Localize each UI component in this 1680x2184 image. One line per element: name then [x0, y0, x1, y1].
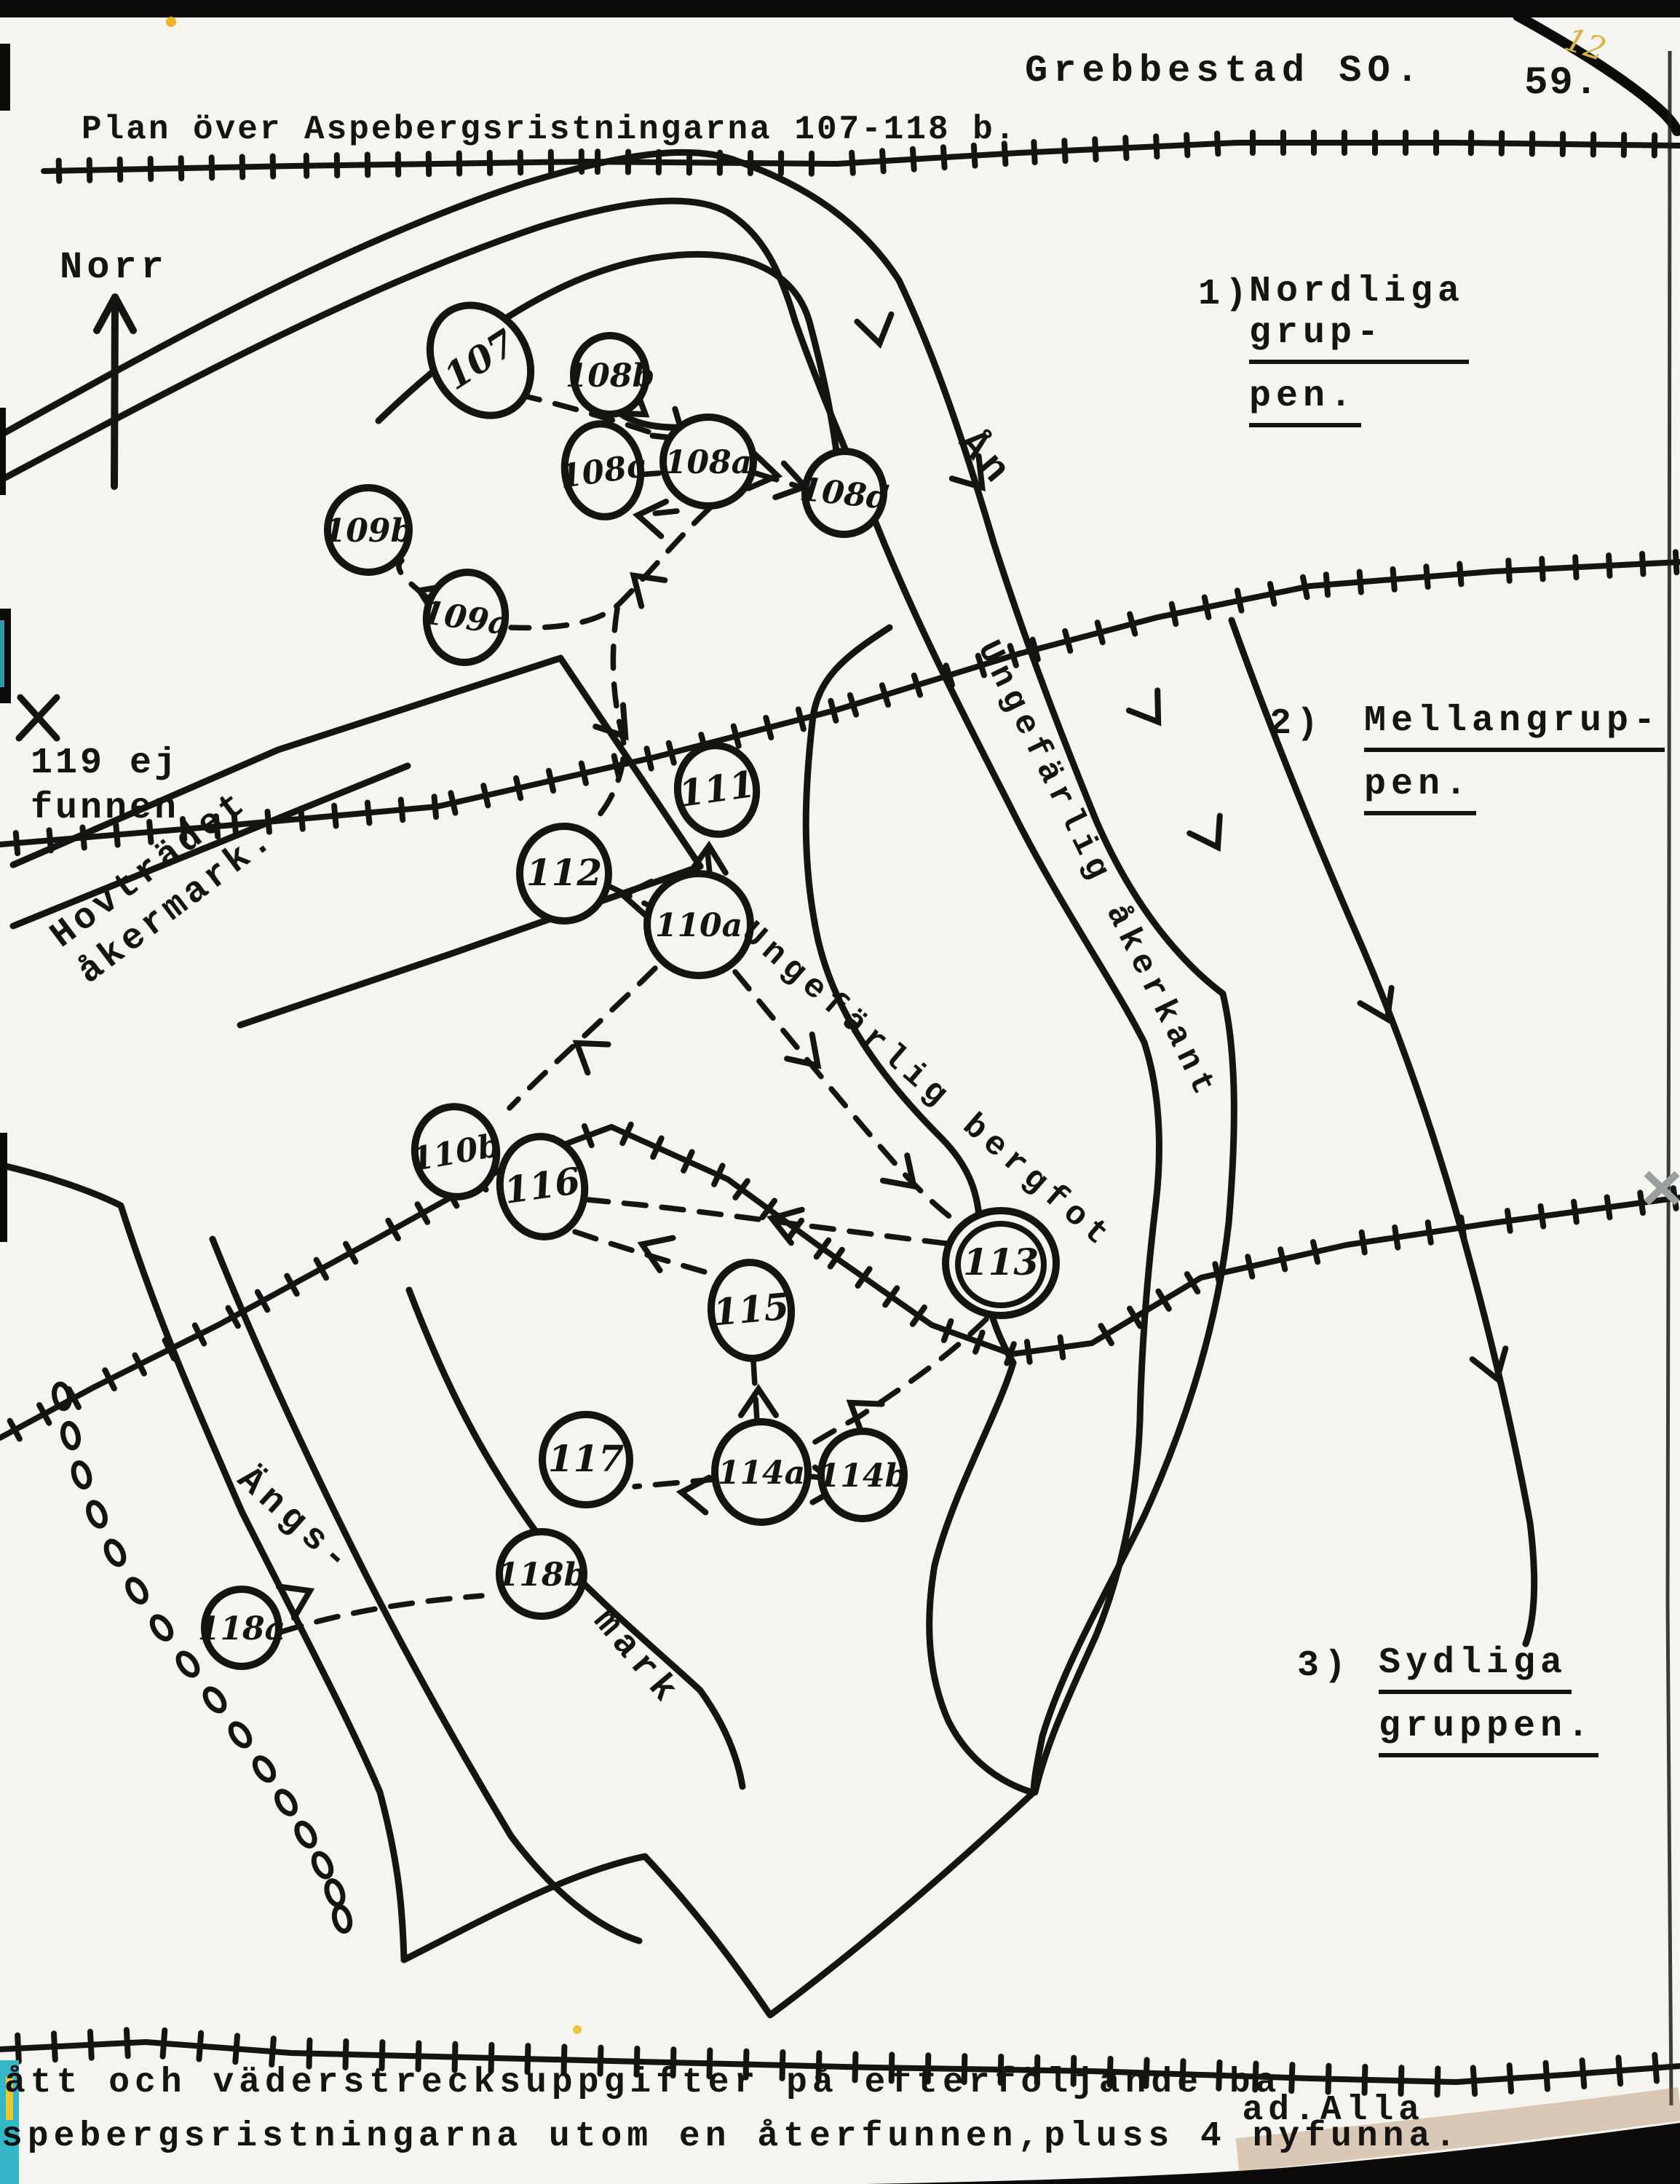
stone-wall-oval [71, 1461, 92, 1489]
station-117: 117 [542, 1415, 630, 1505]
svg-text:108a: 108a [665, 444, 752, 481]
station-114a: 114a [715, 1422, 808, 1522]
station-114b: 114b [818, 1431, 908, 1519]
station-113: 113 [946, 1211, 1056, 1315]
scanned-map-page: 107108b108c108a108d109b109a111112110a110… [0, 0, 1680, 2184]
compass-label: Norr [60, 246, 168, 289]
svg-text:118a: 118a [198, 1610, 285, 1647]
station-108c: 108c [553, 418, 652, 522]
stone-wall-oval [324, 1879, 346, 1907]
direction-arrow-icon [635, 498, 666, 537]
footer-line-2: spebergsristningarna utom en återfunnen,… [1, 2117, 1461, 2156]
yellow-speck [573, 2025, 582, 2034]
footer-line-1: ått och väderstrecksuppgifter på efterfö… [4, 2063, 1464, 2102]
station-108a: 108a [663, 417, 753, 506]
stone-wall-oval [273, 1788, 298, 1816]
legend-label: Sydliga [1379, 1642, 1572, 1694]
svg-text:109b: 109b [324, 513, 413, 550]
svg-text:112: 112 [526, 851, 602, 894]
station-116: 116 [494, 1131, 591, 1243]
meadow-ne-boundary [409, 1290, 742, 1787]
station-111: 111 [672, 740, 762, 839]
station-109b: 109b [324, 488, 413, 572]
hatched-boundary [0, 1125, 1680, 1439]
stone-wall-oval [148, 1613, 175, 1642]
legend-index: 2) [1269, 703, 1323, 745]
stone-wall-oval [227, 1720, 253, 1749]
station-107: 107 [410, 286, 551, 435]
meadow-zigzag [404, 1792, 1034, 2015]
svg-text:114a: 114a [718, 1455, 805, 1492]
direction-arrow-icon [857, 314, 896, 347]
direction-arrow-icon [1189, 816, 1233, 856]
station-112: 112 [520, 826, 609, 921]
page-number: 59. [1524, 61, 1599, 106]
direction-arrow-icon [622, 563, 665, 606]
direction-arrow-icon [635, 1228, 673, 1270]
stone-wall-oval [103, 1538, 127, 1567]
svg-text:114b: 114b [818, 1457, 908, 1495]
station-110a: 110a [647, 874, 750, 976]
page-title: Plan över Aspebergsristningarna 107-118 … [82, 111, 1017, 149]
stone-wall-oval [175, 1650, 201, 1678]
svg-text:117: 117 [548, 1437, 625, 1480]
legend-index: 1) [1198, 274, 1252, 315]
station-118a: 118a [198, 1589, 285, 1666]
station-109a: 109a [416, 566, 515, 668]
station-115: 115 [707, 1259, 795, 1361]
svg-text:108b: 108b [566, 357, 655, 395]
svg-text:110a: 110a [655, 907, 742, 944]
station-110b: 110b [404, 1099, 507, 1203]
stone-wall-oval [60, 1422, 81, 1449]
legend-label: gruppen. [1379, 1706, 1598, 1757]
not-found-x-marker [19, 697, 57, 738]
svg-text:118b: 118b [497, 1556, 587, 1594]
station-circles: 107108b108c108a108d109b109a111112110a110… [198, 286, 1056, 1666]
stone-wall-oval [332, 1905, 352, 1933]
stone-wall-oval [310, 1851, 334, 1879]
stone-wall-oval [293, 1820, 318, 1848]
stone-wall-oval [202, 1685, 228, 1714]
yellow-speck [166, 17, 176, 27]
station-118b: 118b [497, 1532, 587, 1616]
right-edge-line [1668, 51, 1671, 2105]
legend-label: Mellangrup- [1364, 700, 1665, 752]
direction-arrow-icon [840, 1388, 881, 1432]
stone-wall-oval [251, 1754, 277, 1783]
direction-arrow-icon [1129, 690, 1173, 732]
legend-label: pen. [1364, 764, 1476, 815]
legend-index: 3) [1297, 1645, 1351, 1687]
legend-label: Nordliga grup- [1249, 271, 1469, 364]
stone-wall-oval [85, 1500, 108, 1528]
north-arrow-icon [97, 297, 133, 486]
sheet-label: Grebbestad SO. [1025, 50, 1425, 92]
svg-text:113: 113 [963, 1241, 1039, 1283]
not-found-note: 119 ejfunnen [31, 741, 179, 831]
stone-wall-oval [124, 1576, 150, 1605]
legend-label: pen. [1249, 376, 1361, 427]
svg-text:115: 115 [711, 1285, 791, 1334]
